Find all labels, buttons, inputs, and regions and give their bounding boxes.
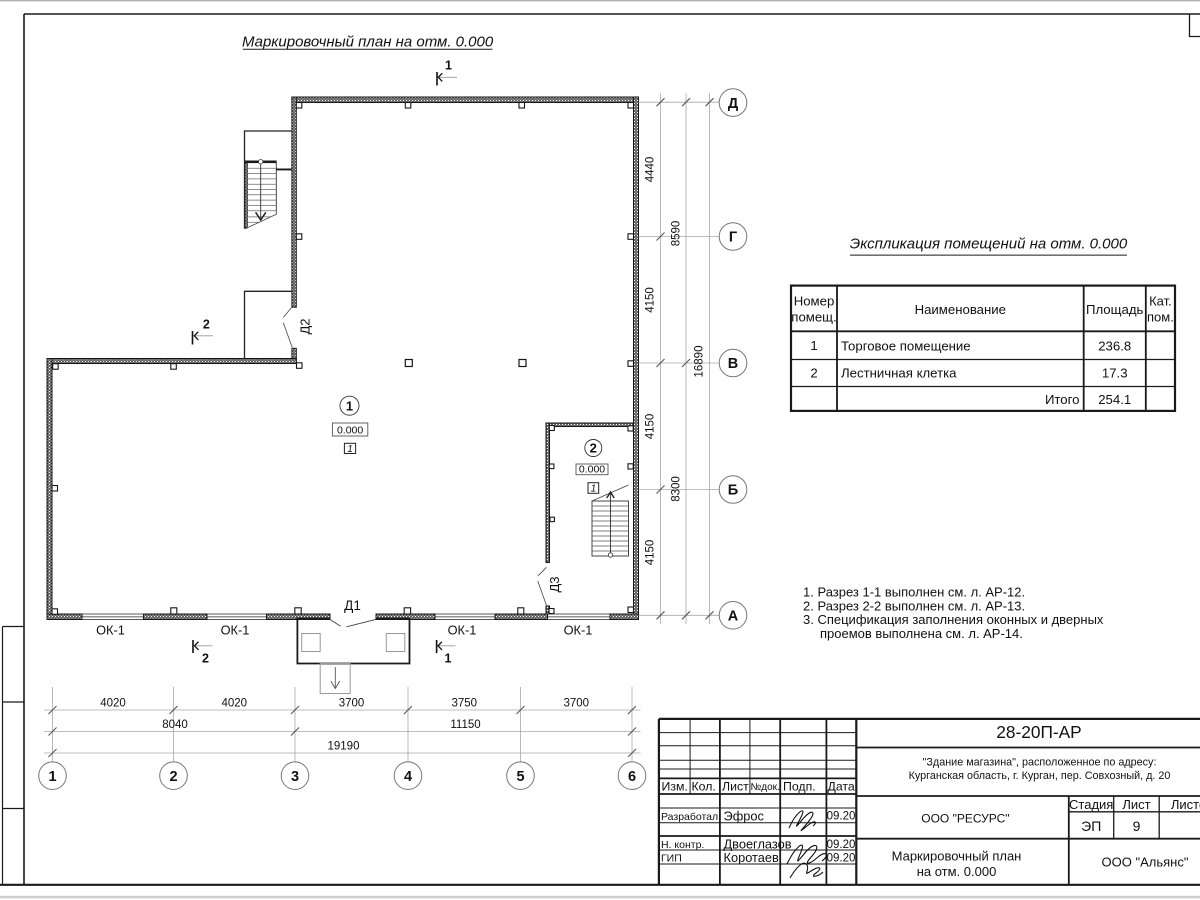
svg-text:А: А — [728, 609, 739, 625]
svg-text:Коротаев: Коротаев — [724, 850, 779, 865]
svg-text:Маркировочный план на отм. 0.0: Маркировочный план на отм. 0.000 — [242, 34, 494, 51]
svg-text:0.000: 0.000 — [579, 464, 605, 476]
svg-text:на отм. 0.000: на отм. 0.000 — [917, 864, 997, 879]
svg-text:Торговое помещение: Торговое помещение — [841, 338, 971, 353]
svg-text:254.1: 254.1 — [1098, 392, 1131, 407]
svg-text:3700: 3700 — [564, 698, 590, 710]
svg-text:помещ.: помещ. — [791, 310, 836, 325]
svg-text:4020: 4020 — [100, 698, 126, 710]
svg-text:Стадия: Стадия — [1069, 797, 1113, 812]
svg-text:5: 5 — [516, 769, 524, 785]
svg-text:Изм.: Изм. — [662, 780, 688, 794]
svg-text:8300: 8300 — [671, 476, 683, 502]
svg-text:Экспликация помещений на отм.: Экспликация помещений на отм. 0.000 — [850, 236, 1128, 253]
svg-text:2: 2 — [202, 652, 209, 666]
svg-text:09.20: 09.20 — [827, 839, 856, 851]
svg-text:Номер: Номер — [794, 294, 835, 309]
svg-text:8590: 8590 — [671, 221, 683, 247]
svg-text:3. Спецификация заполнения око: 3. Спецификация заполнения оконных и две… — [803, 612, 1104, 627]
svg-text:3750: 3750 — [452, 698, 478, 710]
svg-text:2: 2 — [590, 441, 597, 456]
svg-text:09.20: 09.20 — [827, 852, 856, 864]
svg-text:1: 1 — [810, 338, 817, 353]
svg-text:Лестничная клетка: Лестничная клетка — [841, 366, 957, 381]
svg-text:8040: 8040 — [162, 719, 188, 731]
svg-text:2: 2 — [810, 365, 817, 380]
svg-text:пом.: пом. — [1147, 310, 1174, 325]
svg-text:Курганская область, г. Курган,: Курганская область, г. Курган, пер. Совх… — [909, 770, 1171, 782]
svg-text:28-20П-АР: 28-20П-АР — [996, 722, 1081, 742]
svg-text:Дата: Дата — [828, 780, 855, 794]
svg-text:проемов выполнена см. л. АР-14: проемов выполнена см. л. АР-14. — [820, 626, 1023, 641]
svg-text:1: 1 — [445, 652, 452, 666]
svg-text:Листов: Листов — [1171, 797, 1200, 812]
svg-text:2: 2 — [169, 769, 177, 785]
svg-text:ООО "РЕСУРС": ООО "РЕСУРС" — [921, 812, 1009, 826]
svg-text:Маркировочный план: Маркировочный план — [892, 848, 1022, 863]
svg-text:ООО "Альянс": ООО "Альянс" — [1102, 855, 1189, 870]
svg-text:3: 3 — [291, 769, 299, 785]
svg-text:Н. контр.: Н. контр. — [661, 839, 704, 851]
svg-text:1: 1 — [347, 444, 353, 455]
svg-text:ОК-1: ОК-1 — [221, 623, 250, 638]
svg-text:4020: 4020 — [222, 698, 248, 710]
svg-text:Наименование: Наименование — [915, 302, 1006, 317]
svg-text:Б: Б — [728, 483, 738, 499]
svg-text:1: 1 — [591, 484, 597, 495]
svg-text:236.8: 236.8 — [1098, 338, 1131, 353]
svg-text:09.20: 09.20 — [827, 811, 856, 823]
svg-text:Д2: Д2 — [298, 318, 313, 334]
svg-text:1: 1 — [48, 769, 56, 785]
svg-text:Площадь: Площадь — [1086, 302, 1144, 317]
svg-text:Д: Д — [728, 96, 739, 112]
svg-text:19190: 19190 — [328, 741, 360, 753]
svg-text:Лист: Лист — [722, 780, 749, 794]
svg-text:1: 1 — [445, 59, 452, 73]
svg-text:ОК-1: ОК-1 — [448, 623, 477, 638]
svg-text:4150: 4150 — [645, 287, 657, 313]
svg-text:9: 9 — [1133, 818, 1141, 834]
svg-text:Кол.: Кол. — [692, 780, 716, 794]
svg-text:6: 6 — [628, 769, 636, 785]
svg-text:Разработал: Разработал — [661, 811, 718, 823]
svg-text:Лист: Лист — [1122, 797, 1150, 812]
svg-text:Кат.: Кат. — [1149, 294, 1172, 309]
svg-text:Подп.: Подп. — [783, 780, 816, 794]
svg-text:Д1: Д1 — [344, 598, 361, 613]
svg-text:№док.: №док. — [751, 782, 780, 793]
svg-text:16890: 16890 — [694, 346, 706, 378]
svg-text:1. Разрез 1-1 выполнен см. л.: 1. Разрез 1-1 выполнен см. л. АР-12. — [803, 585, 1025, 600]
svg-text:ЭП: ЭП — [1081, 818, 1101, 834]
svg-text:4440: 4440 — [645, 157, 657, 183]
svg-text:"Здание магазина", расположенн: "Здание магазина", расположенное по адре… — [923, 757, 1157, 769]
svg-text:Г: Г — [729, 230, 737, 246]
svg-text:0.000: 0.000 — [337, 424, 363, 436]
svg-text:ОК-1: ОК-1 — [564, 623, 593, 638]
svg-text:4: 4 — [404, 769, 412, 785]
svg-text:2: 2 — [203, 318, 210, 332]
svg-text:4150: 4150 — [645, 540, 657, 566]
svg-text:Эфрос: Эфрос — [724, 808, 765, 823]
svg-text:Итого: Итого — [1045, 392, 1080, 407]
svg-text:В: В — [728, 356, 738, 372]
svg-text:Д3: Д3 — [547, 576, 562, 592]
svg-text:11150: 11150 — [450, 719, 480, 731]
svg-text:4150: 4150 — [645, 414, 657, 440]
svg-text:ОК-1: ОК-1 — [96, 623, 125, 638]
svg-text:2. Разрез 2-2 выполнен см. л.: 2. Разрез 2-2 выполнен см. л. АР-13. — [803, 598, 1025, 613]
svg-text:17.3: 17.3 — [1102, 366, 1128, 381]
svg-text:ГИП: ГИП — [661, 853, 682, 865]
svg-text:1: 1 — [346, 398, 353, 413]
svg-text:3700: 3700 — [339, 698, 365, 710]
